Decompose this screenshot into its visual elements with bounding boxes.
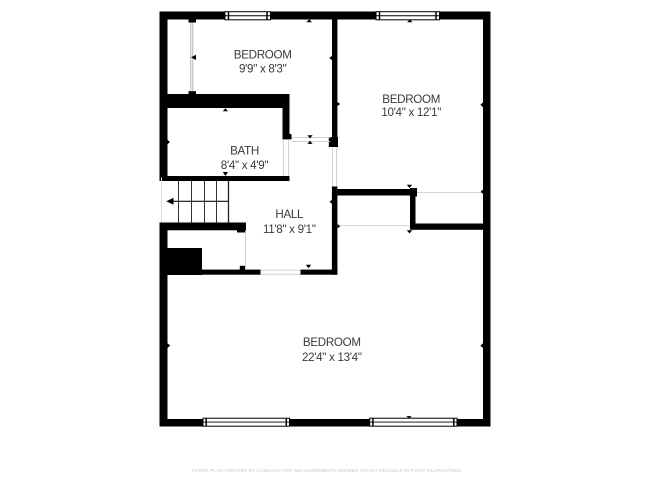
svg-text:BATH: BATH xyxy=(230,144,259,157)
svg-text:11'8" x 9'1": 11'8" x 9'1" xyxy=(263,223,316,236)
svg-text:FLOOR PLAN CREATED BY CUBICASA: FLOOR PLAN CREATED BY CUBICASA APP. MEAS… xyxy=(192,468,463,474)
svg-text:HALL: HALL xyxy=(275,208,304,221)
svg-text:BEDROOM: BEDROOM xyxy=(234,48,292,61)
svg-text:22'4" x 13'4": 22'4" x 13'4" xyxy=(302,351,362,364)
svg-text:10'4" x 12'1": 10'4" x 12'1" xyxy=(381,106,441,119)
svg-text:BEDROOM: BEDROOM xyxy=(382,93,440,106)
svg-text:8'4" x 4'9": 8'4" x 4'9" xyxy=(221,159,269,172)
svg-text:9'9" x 8'3": 9'9" x 8'3" xyxy=(239,62,287,75)
svg-text:BEDROOM: BEDROOM xyxy=(303,336,361,349)
